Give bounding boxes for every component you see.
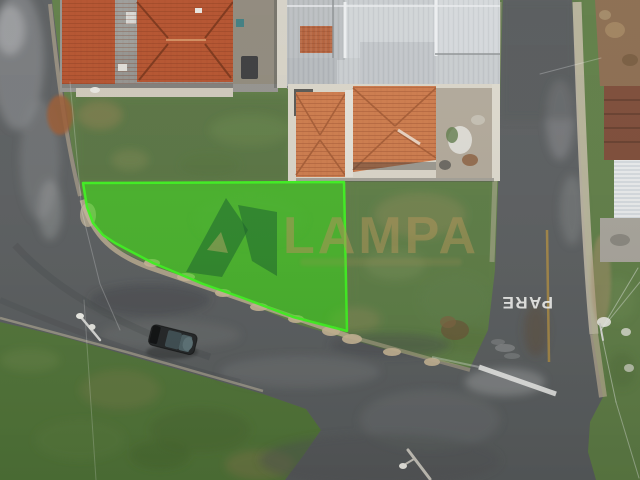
aerial-photo-canvas: PARE LAMPA [0,0,640,480]
photo-vignette [0,0,640,480]
aerial-photo: PARE LAMPA [0,0,640,480]
